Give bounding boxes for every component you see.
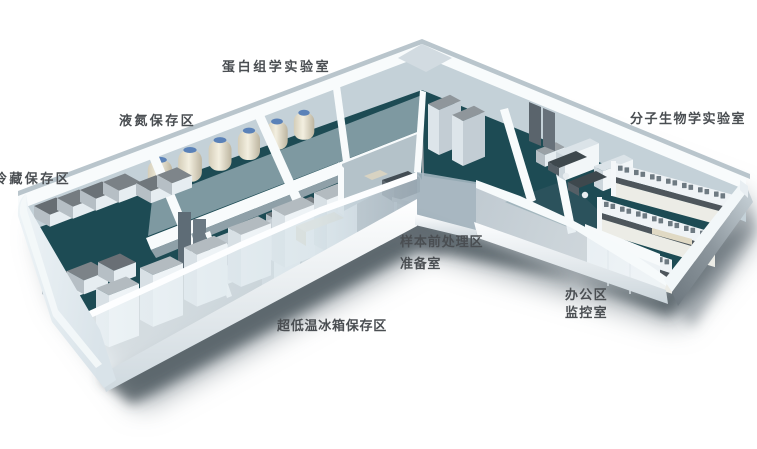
svg-text:超低温冰箱保存区: 超低温冰箱保存区 bbox=[277, 318, 387, 333]
svg-text:液氮保存区: 液氮保存区 bbox=[119, 113, 196, 128]
svg-text:样本前处理区: 样本前处理区 bbox=[400, 234, 483, 249]
svg-text:蛋白组学实验室: 蛋白组学实验室 bbox=[222, 59, 331, 74]
svg-text:分子生物学实验室: 分子生物学实验室 bbox=[630, 111, 746, 126]
svg-text:准备室: 准备室 bbox=[400, 256, 441, 271]
svg-text:监控室: 监控室 bbox=[565, 305, 608, 320]
svg-text:办公区: 办公区 bbox=[565, 287, 608, 302]
svg-text:冷藏保存区: 冷藏保存区 bbox=[0, 171, 71, 186]
